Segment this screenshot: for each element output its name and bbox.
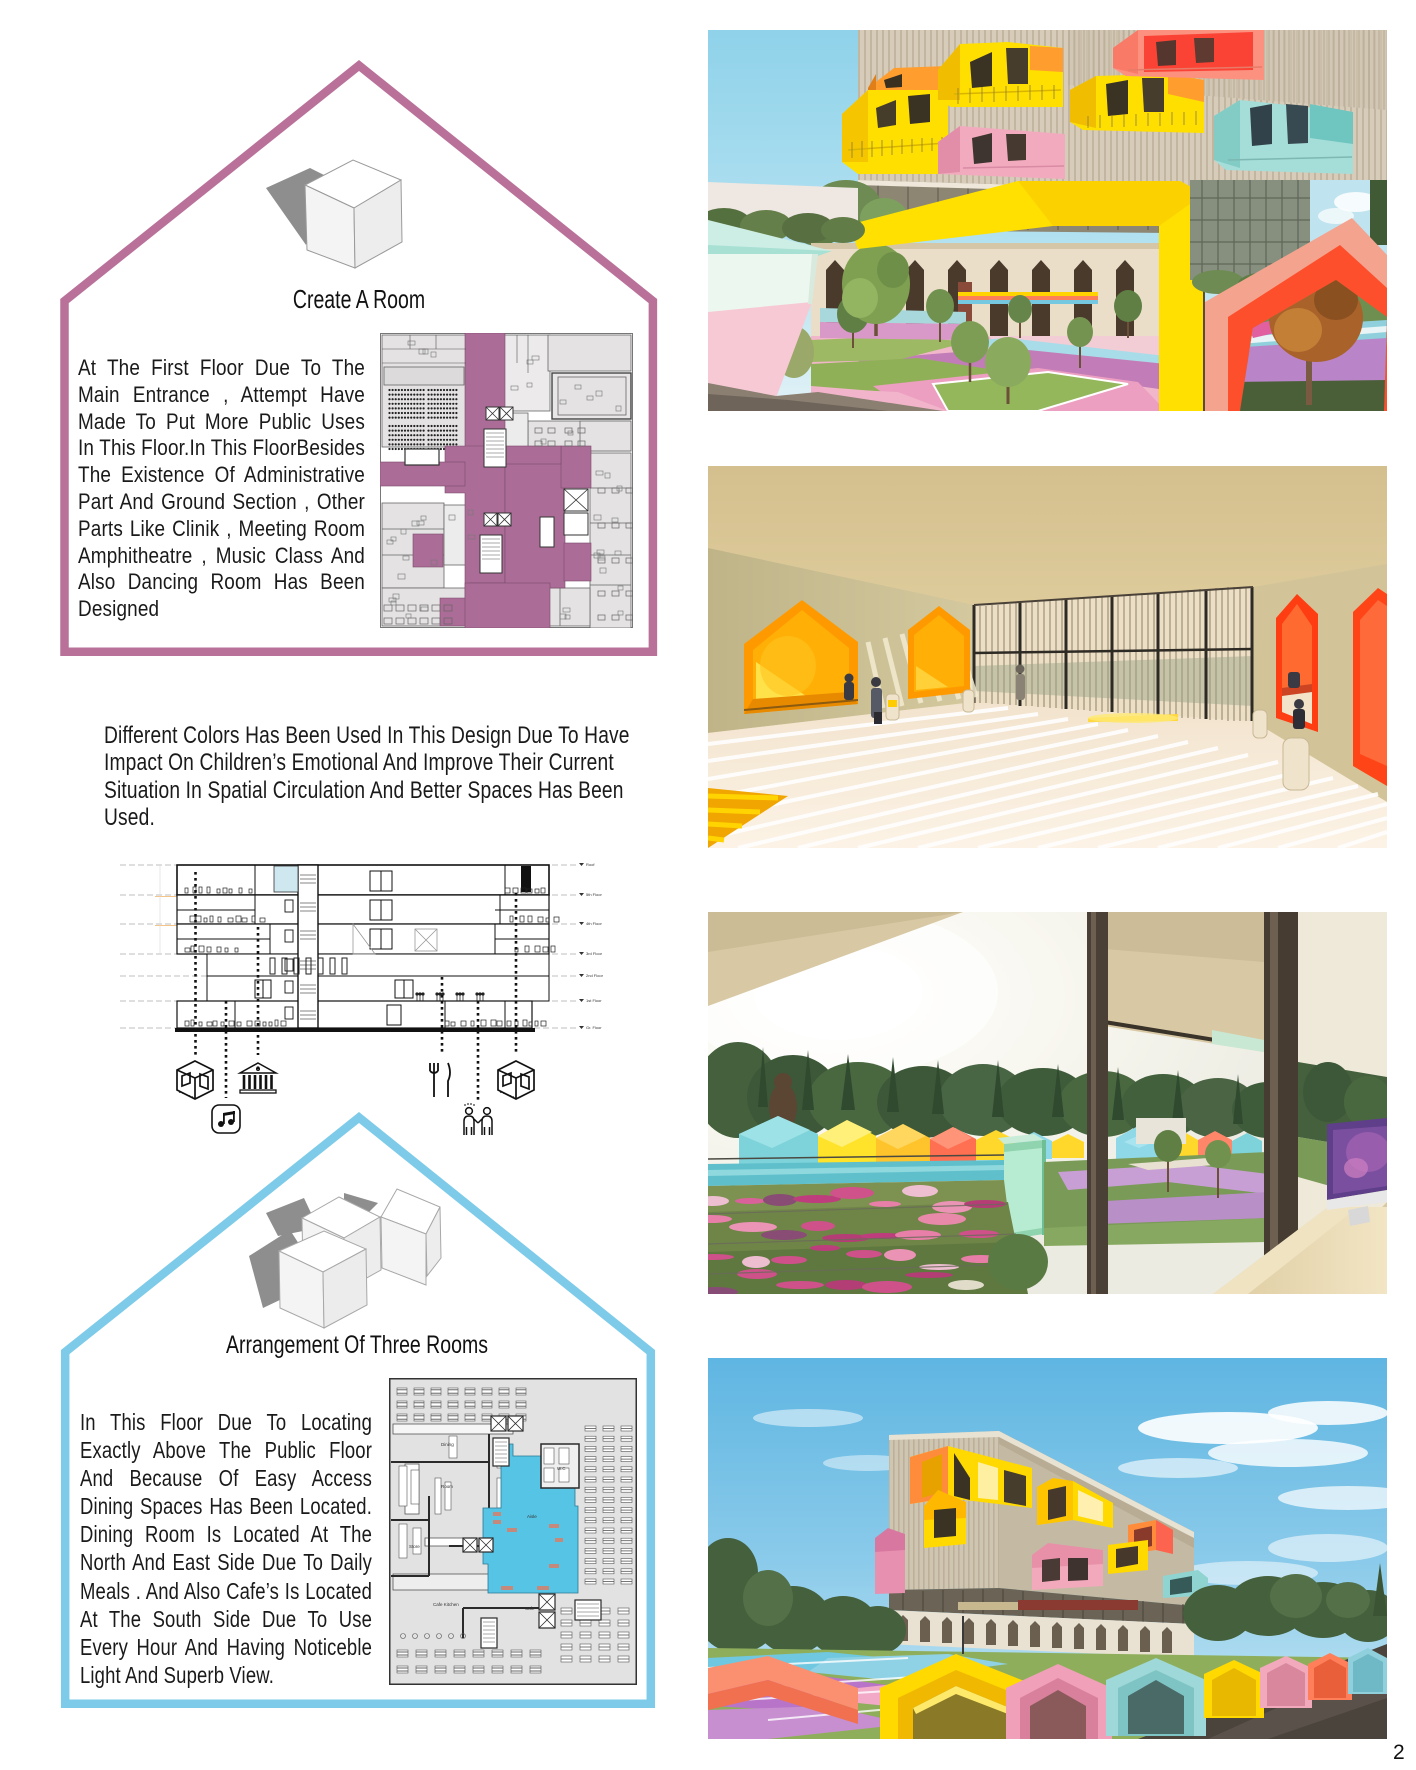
svg-text:Cafe: Cafe	[525, 1606, 535, 1611]
svg-text:1st Floor: 1st Floor	[586, 998, 602, 1003]
svg-text:2nd Floor: 2nd Floor	[586, 973, 604, 978]
svg-text:Store: Store	[409, 1544, 420, 1549]
svg-text:Cafe Kitchen: Cafe Kitchen	[433, 1602, 459, 1607]
svg-text:3rd Floor: 3rd Floor	[586, 951, 603, 956]
svg-text:Gr. Floor: Gr. Floor	[586, 1025, 602, 1030]
svg-text:4th Floor: 4th Floor	[586, 921, 602, 926]
svg-text:Dining: Dining	[441, 1442, 454, 1447]
svg-text:5th Floor: 5th Floor	[586, 892, 602, 897]
svg-text:Aisle: Aisle	[527, 1514, 537, 1519]
svg-text:Room: Room	[441, 1484, 453, 1489]
svg-text:W.C: W.C	[557, 1466, 566, 1471]
svg-text:Roof: Roof	[586, 862, 595, 867]
